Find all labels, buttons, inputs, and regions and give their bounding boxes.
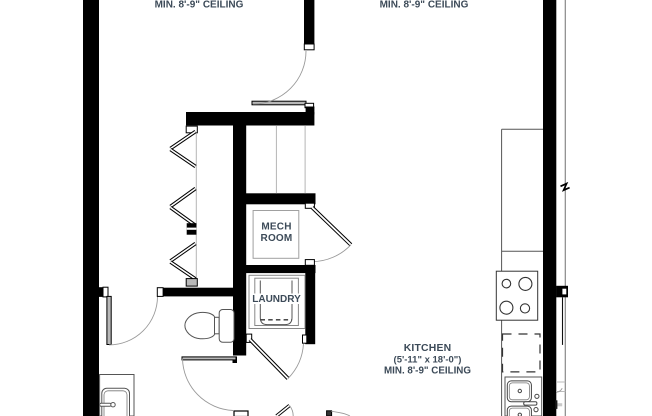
svg-text:(5'-11" x 18'-0"): (5'-11" x 18'-0") (394, 354, 462, 365)
svg-text:KITCHEN: KITCHEN (404, 343, 452, 354)
svg-text:MIN. 8'-9" CEILING: MIN. 8'-9" CEILING (380, 0, 469, 11)
svg-text:MIN. 8'-9" CEILING: MIN. 8'-9" CEILING (384, 366, 471, 377)
svg-text:MIN. 8'-9" CEILING: MIN. 8'-9" CEILING (155, 0, 244, 11)
svg-text:MECH: MECH (261, 222, 291, 233)
svg-text:LAUNDRY: LAUNDRY (252, 294, 301, 305)
svg-text:ROOM: ROOM (261, 233, 293, 244)
